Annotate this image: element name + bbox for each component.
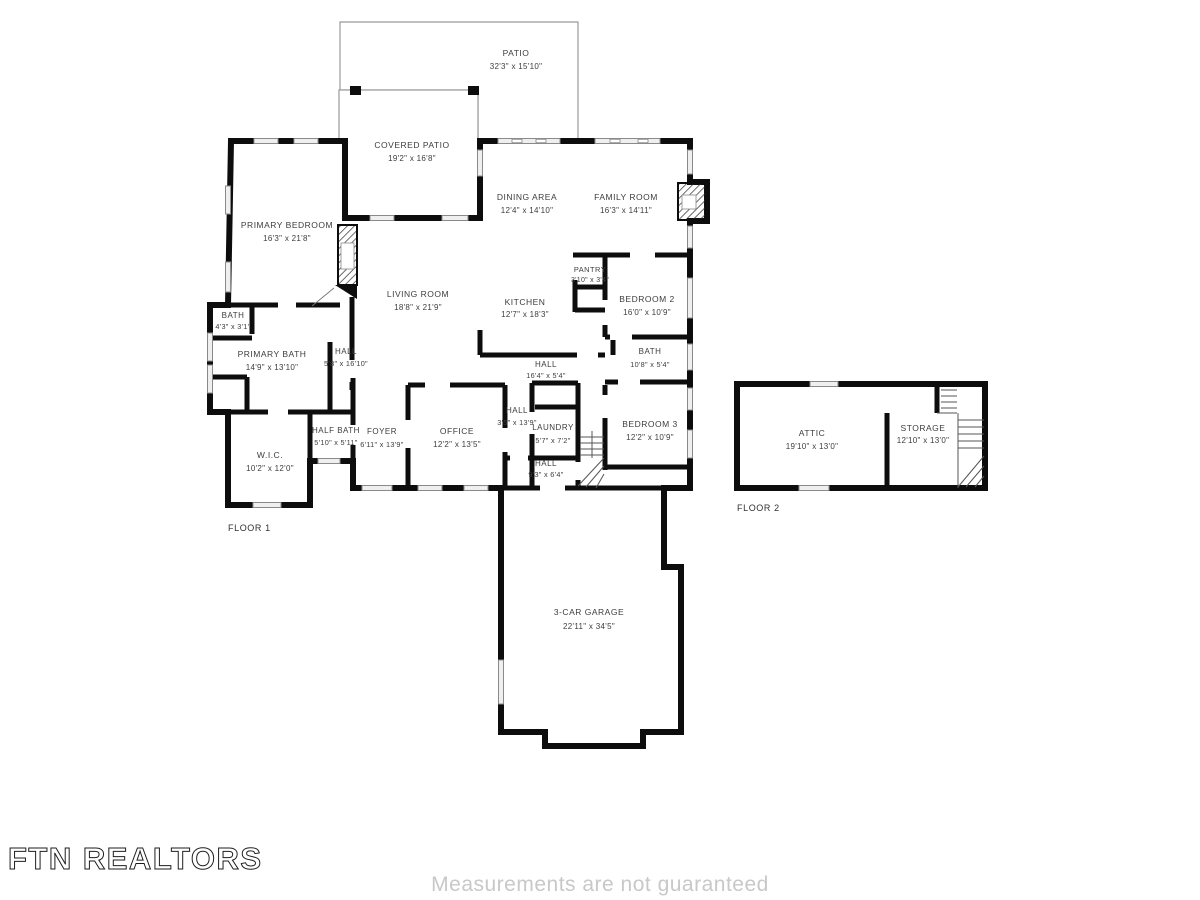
patio-post	[468, 86, 479, 95]
room-dims-bedroom-2: 16'0" x 10'9"	[623, 308, 671, 317]
room-label-laundry: LAUNDRY	[532, 423, 574, 432]
room-dims-family-room: 16'3" x 14'11"	[600, 206, 652, 215]
room-label-bedroom-2: BEDROOM 2	[619, 294, 675, 304]
room-label-bedroom-3: BEDROOM 3	[622, 419, 678, 429]
room-dims-hall-4: 9'3" x 6'4"	[528, 470, 563, 479]
room-label-pantry: PANTRY	[574, 265, 606, 274]
room-dims-foyer: 6'11" x 13'9"	[360, 440, 403, 449]
room-label-half-bath: HALF BATH	[312, 426, 360, 435]
room-dims-kitchen: 12'7" x 18'3"	[501, 310, 549, 319]
room-label-foyer: FOYER	[367, 427, 397, 436]
room-dims-primary-bath: 14'9" x 13'10"	[246, 363, 299, 372]
room-label-dining-area: DINING AREA	[497, 192, 557, 202]
room-label-primary-bath: PRIMARY BATH	[238, 349, 307, 359]
room-dims-pantry: 3'10" x 3'4"	[571, 277, 609, 284]
room-label-hall-1: HALL	[335, 347, 357, 356]
room-label-wic: W.I.C.	[257, 450, 283, 460]
room-label-living-room: LIVING ROOM	[387, 289, 449, 299]
covered-patio-outline	[339, 86, 479, 217]
room-dims-primary-bedroom: 16'3" x 21'8"	[263, 234, 311, 243]
room-label-storage: STORAGE	[901, 423, 946, 433]
room-dims-wic: 10'2" x 12'0"	[246, 464, 294, 473]
room-label-attic: ATTIC	[799, 428, 825, 438]
room-label-office: OFFICE	[440, 426, 474, 436]
floor-plan-page: PATIO 32'3" x 15'10" COVERED PATIO 19'2"…	[0, 0, 1200, 900]
room-dims-covered-patio: 19'2" x 16'8"	[388, 154, 436, 163]
room-label-hall-3: HALL	[506, 406, 528, 415]
room-label-hall-2: HALL	[535, 360, 557, 369]
room-dims-attic: 19'10" x 13'0"	[786, 442, 839, 451]
room-dims-half-bath: 5'10" x 5'11"	[314, 438, 357, 447]
room-dims-garage: 22'11" x 34'5"	[563, 622, 615, 631]
room-dims-hall-2: 16'4" x 5'4"	[526, 371, 566, 380]
room-dims-living-room: 18'8" x 21'9"	[394, 303, 442, 312]
room-label-patio: PATIO	[503, 48, 530, 58]
floor-plan-canvas: PATIO 32'3" x 15'10" COVERED PATIO 19'2"…	[0, 0, 1200, 900]
room-label-garage: 3-CAR GARAGE	[554, 607, 624, 617]
room-label-hall-4: HALL	[535, 459, 557, 468]
room-dims-bedroom-3: 12'2" x 10'9"	[626, 433, 674, 442]
room-label-family-room: FAMILY ROOM	[594, 192, 658, 202]
room-label-bath-2: BATH	[639, 347, 662, 356]
disclaimer-text: Measurements are not guaranteed	[431, 873, 769, 896]
brand-logo: FTN REALTORS	[8, 841, 263, 876]
fireplace-family-room	[678, 183, 706, 220]
room-dims-bath-2: 10'8" x 5'4"	[630, 360, 670, 369]
room-dims-storage: 12'10" x 13'0"	[897, 436, 950, 445]
room-dims-hall-3: 3'5" x 13'9"	[497, 418, 537, 427]
room-dims-patio: 32'3" x 15'10"	[490, 62, 543, 71]
room-label-kitchen: KITCHEN	[505, 297, 546, 307]
room-label-primary-bedroom: PRIMARY BEDROOM	[241, 220, 333, 230]
room-label-covered-patio: COVERED PATIO	[374, 140, 449, 150]
floor2-caption: FLOOR 2	[737, 503, 780, 513]
room-dims-office: 12'2" x 13'5"	[433, 440, 481, 449]
room-label-bath-small: BATH	[222, 311, 245, 320]
room-dims-hall-1: 5'8" x 16'10"	[324, 359, 368, 368]
room-dims-dining-area: 12'4" x 14'10"	[501, 206, 554, 215]
patio-post	[350, 86, 361, 95]
floor1-caption: FLOOR 1	[228, 523, 271, 533]
room-dims-laundry: 5'7" x 7'2"	[535, 436, 570, 445]
room-dims-bath-small: 4'3" x 3'1"	[215, 322, 250, 331]
